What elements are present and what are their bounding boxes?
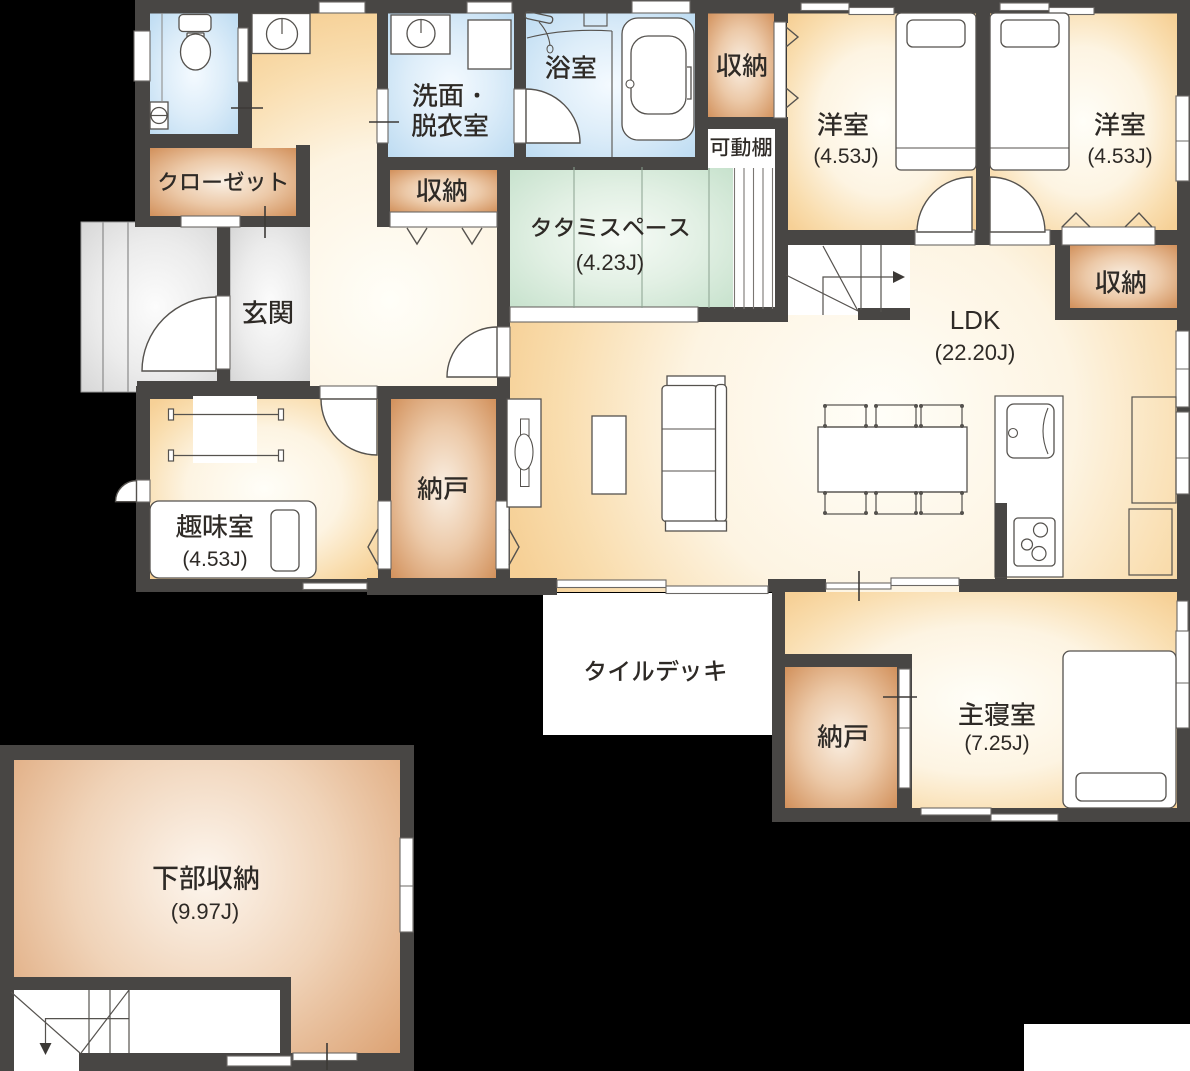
svg-text:(4.53J): (4.53J) [813,145,878,168]
svg-text:(4.53J): (4.53J) [1087,145,1152,168]
svg-text:LDK: LDK [950,305,1001,335]
svg-text:(9.97J): (9.97J) [171,899,239,924]
svg-text:(7.25J): (7.25J) [964,732,1029,755]
svg-text:(4.53J): (4.53J) [182,548,247,571]
svg-text:(22.20J): (22.20J) [935,340,1016,365]
svg-text:(4.23J): (4.23J) [576,250,644,275]
